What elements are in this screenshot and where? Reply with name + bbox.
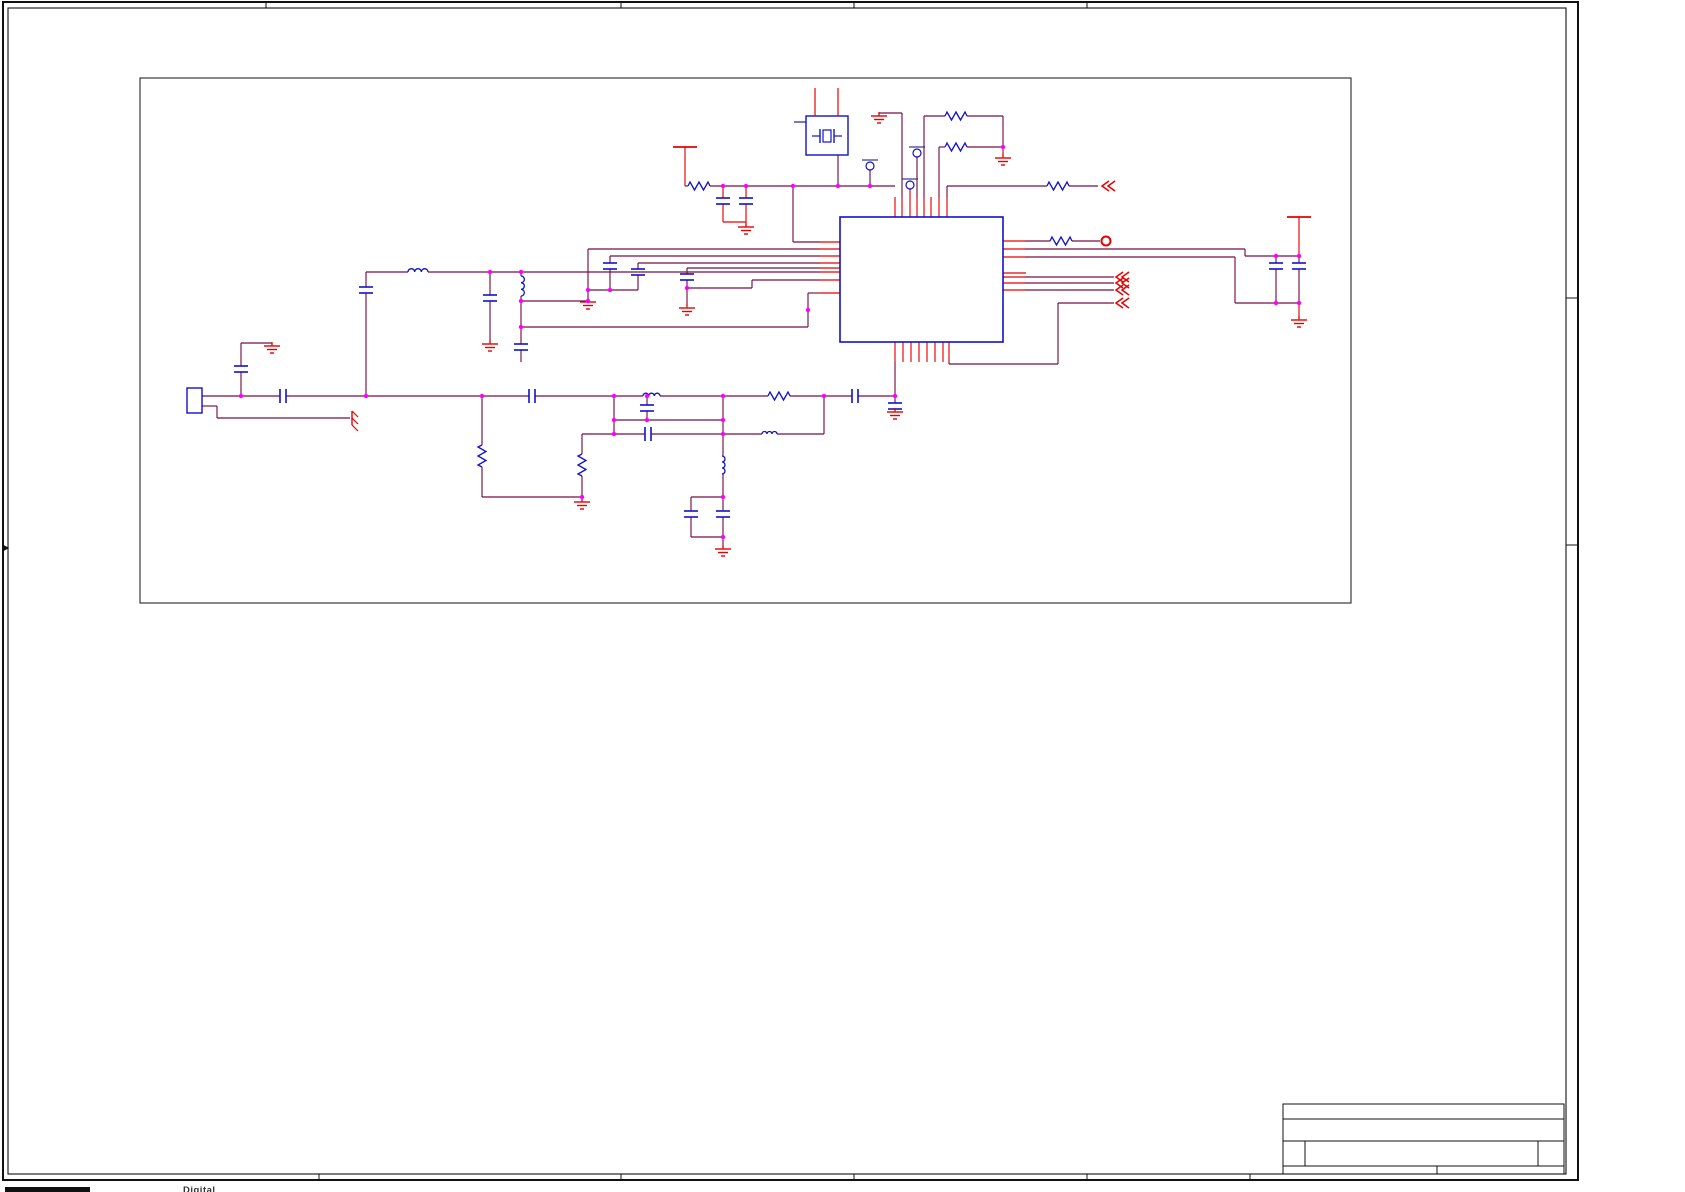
junction-dot (721, 535, 725, 539)
junction-dot (480, 394, 484, 398)
sheet-outer-border (3, 2, 1578, 1180)
inductor (762, 432, 777, 435)
junction-dot (239, 394, 243, 398)
junction-dot (721, 432, 725, 436)
schematic-region (140, 78, 1351, 603)
junction-dot (612, 394, 616, 398)
junction-dot (1297, 301, 1301, 305)
junction-dot (1274, 301, 1278, 305)
junction-dot (580, 495, 584, 499)
offpage-port-chevron-icon (1116, 285, 1129, 295)
sheet-frame (2, 2, 1578, 1180)
footer-text-fragment: Digital (183, 1185, 343, 1192)
title-block-border (1283, 1104, 1564, 1174)
resistor (945, 143, 967, 151)
title-block (1283, 1104, 1564, 1174)
resistor (478, 445, 486, 467)
junction-dot (721, 418, 725, 422)
net-wires (202, 113, 1299, 548)
ground-symbol (995, 154, 1011, 165)
junction-dot (586, 299, 590, 303)
ground-symbol (574, 498, 590, 509)
junction-dot (721, 394, 725, 398)
junction-dot (608, 288, 612, 292)
ground-symbol (738, 223, 754, 234)
input-connector (187, 388, 202, 413)
junction-dot (645, 394, 649, 398)
junction-dot (1001, 145, 1005, 149)
junction-dot (519, 325, 523, 329)
inductor (408, 269, 428, 272)
inductor (722, 456, 725, 474)
junction-dot (519, 270, 523, 274)
offpage-port-chevron-icon (1102, 181, 1115, 191)
junction-dot (836, 184, 840, 188)
junction-dot (893, 394, 897, 398)
offpage-port-chevron-icon (1116, 272, 1129, 282)
ground-symbol (679, 304, 695, 315)
ground-symbol (715, 545, 731, 556)
sheet-inner-border (8, 8, 1566, 1174)
junction-dot (721, 495, 725, 499)
junction-dot (612, 432, 616, 436)
schematic-border (140, 78, 1351, 603)
resistor (578, 454, 586, 476)
resistor (768, 392, 790, 400)
junction-dot (806, 308, 810, 312)
ground-symbol (871, 112, 887, 123)
junction-dot (645, 418, 649, 422)
schematic-sheet: Digital (0, 0, 1685, 1192)
resistor (688, 182, 710, 190)
resistor (1050, 237, 1072, 245)
junction-dot (744, 184, 748, 188)
no-connect-icon (862, 160, 878, 170)
junction-dot (364, 394, 368, 398)
junction-dot (868, 184, 872, 188)
footer-logo-bar (5, 1187, 90, 1192)
no-connect-icon (909, 147, 925, 157)
junction-dot (791, 184, 795, 188)
resistor (1047, 182, 1069, 190)
junction-dot (822, 394, 826, 398)
junction-dot (519, 299, 523, 303)
no-connect-icon (902, 179, 918, 189)
resistor (945, 112, 967, 120)
crystal-oscillator (794, 88, 848, 155)
junction-dot (721, 184, 725, 188)
junction-dot (685, 286, 689, 290)
inductor (521, 276, 524, 296)
chassis-ground-symbol (352, 411, 358, 431)
ground-symbol (482, 340, 498, 351)
junction-dot (612, 418, 616, 422)
junction-dot (586, 288, 590, 292)
junction-dots (239, 145, 1301, 539)
ground-symbol (1291, 316, 1307, 327)
ic-body (840, 217, 1003, 342)
junction-dot (488, 270, 492, 274)
offpage-port-ring-icon (1102, 237, 1111, 246)
junction-dot (1274, 254, 1278, 258)
schematic-canvas (0, 0, 1685, 1192)
junction-dot (1297, 254, 1301, 258)
offpage-port-chevron-icon (1116, 298, 1129, 308)
components (187, 88, 1311, 556)
ground-symbol (264, 342, 280, 353)
